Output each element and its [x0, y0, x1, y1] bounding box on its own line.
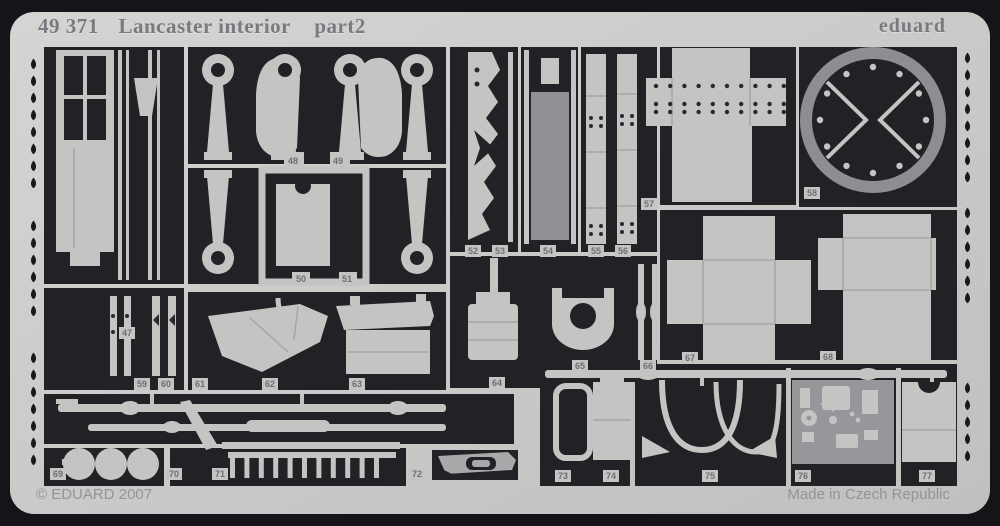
- part-number-tab-50: 50: [293, 273, 309, 285]
- part-number-tab-64: 64: [489, 377, 505, 389]
- part-number-tab-76: 76: [795, 470, 811, 482]
- part-number-tab-75: 75: [702, 470, 718, 482]
- part-number-tab-62: 62: [262, 378, 278, 390]
- part-number-tab-66: 66: [640, 360, 656, 372]
- brand-logo: eduard: [879, 15, 946, 38]
- part-number-tab-63: 63: [349, 378, 365, 390]
- part-number-tab-72: 72: [409, 468, 425, 480]
- part-number-tab-58: 58: [804, 187, 820, 199]
- part-number-tab-52: 52: [465, 245, 481, 257]
- part-number-tab-55: 55: [588, 245, 604, 257]
- instrument-panel-part: [792, 380, 894, 464]
- part-number-tab-51: 51: [339, 273, 355, 285]
- part-number-tab-54: 54: [540, 245, 556, 257]
- part-number-tab-56: 56: [615, 245, 631, 257]
- part-number-tab-53: 53: [492, 245, 508, 257]
- copyright-text: © EDUARD 2007: [36, 486, 152, 503]
- part-number-tab-61: 61: [192, 378, 208, 390]
- part-number-tab-60: 60: [158, 378, 174, 390]
- part-number-tab-74: 74: [603, 470, 619, 482]
- part-number-tab-48: 48: [285, 155, 301, 167]
- part-number-tab-65: 65: [572, 360, 588, 372]
- catalog-number: 49 371: [38, 14, 99, 38]
- door-part: [56, 50, 114, 266]
- seat-part-74: [593, 374, 631, 460]
- sheet-title: 49 371 Lancaster interior part2: [38, 14, 366, 39]
- part-number-tab-71: 71: [212, 468, 228, 480]
- made-in-text: Made in Czech Republic: [787, 486, 950, 503]
- part-number-tab-57: 57: [641, 198, 657, 210]
- product-name: Lancaster interior: [119, 14, 291, 38]
- part-number-tab-69: 69: [50, 468, 66, 480]
- part-suffix: part2: [314, 14, 366, 38]
- part-number-tab-67: 67: [682, 352, 698, 364]
- part-number-tab-47: 47: [119, 327, 135, 339]
- part-number-tab-73: 73: [555, 470, 571, 482]
- box-part-77: [902, 382, 956, 462]
- part-number-tab-59: 59: [134, 378, 150, 390]
- seat-back-part: [336, 294, 434, 374]
- part-number-tab-77: 77: [919, 470, 935, 482]
- part-number-tab-49: 49: [330, 155, 346, 167]
- photoetch-sheet-photo: 49 371 Lancaster interior part2 eduard ©…: [0, 0, 1000, 526]
- roller-circles-part: [62, 448, 159, 480]
- sheet-graphic: [0, 0, 1000, 526]
- part-number-tab-70: 70: [166, 468, 182, 480]
- part-number-tab-68: 68: [820, 351, 836, 363]
